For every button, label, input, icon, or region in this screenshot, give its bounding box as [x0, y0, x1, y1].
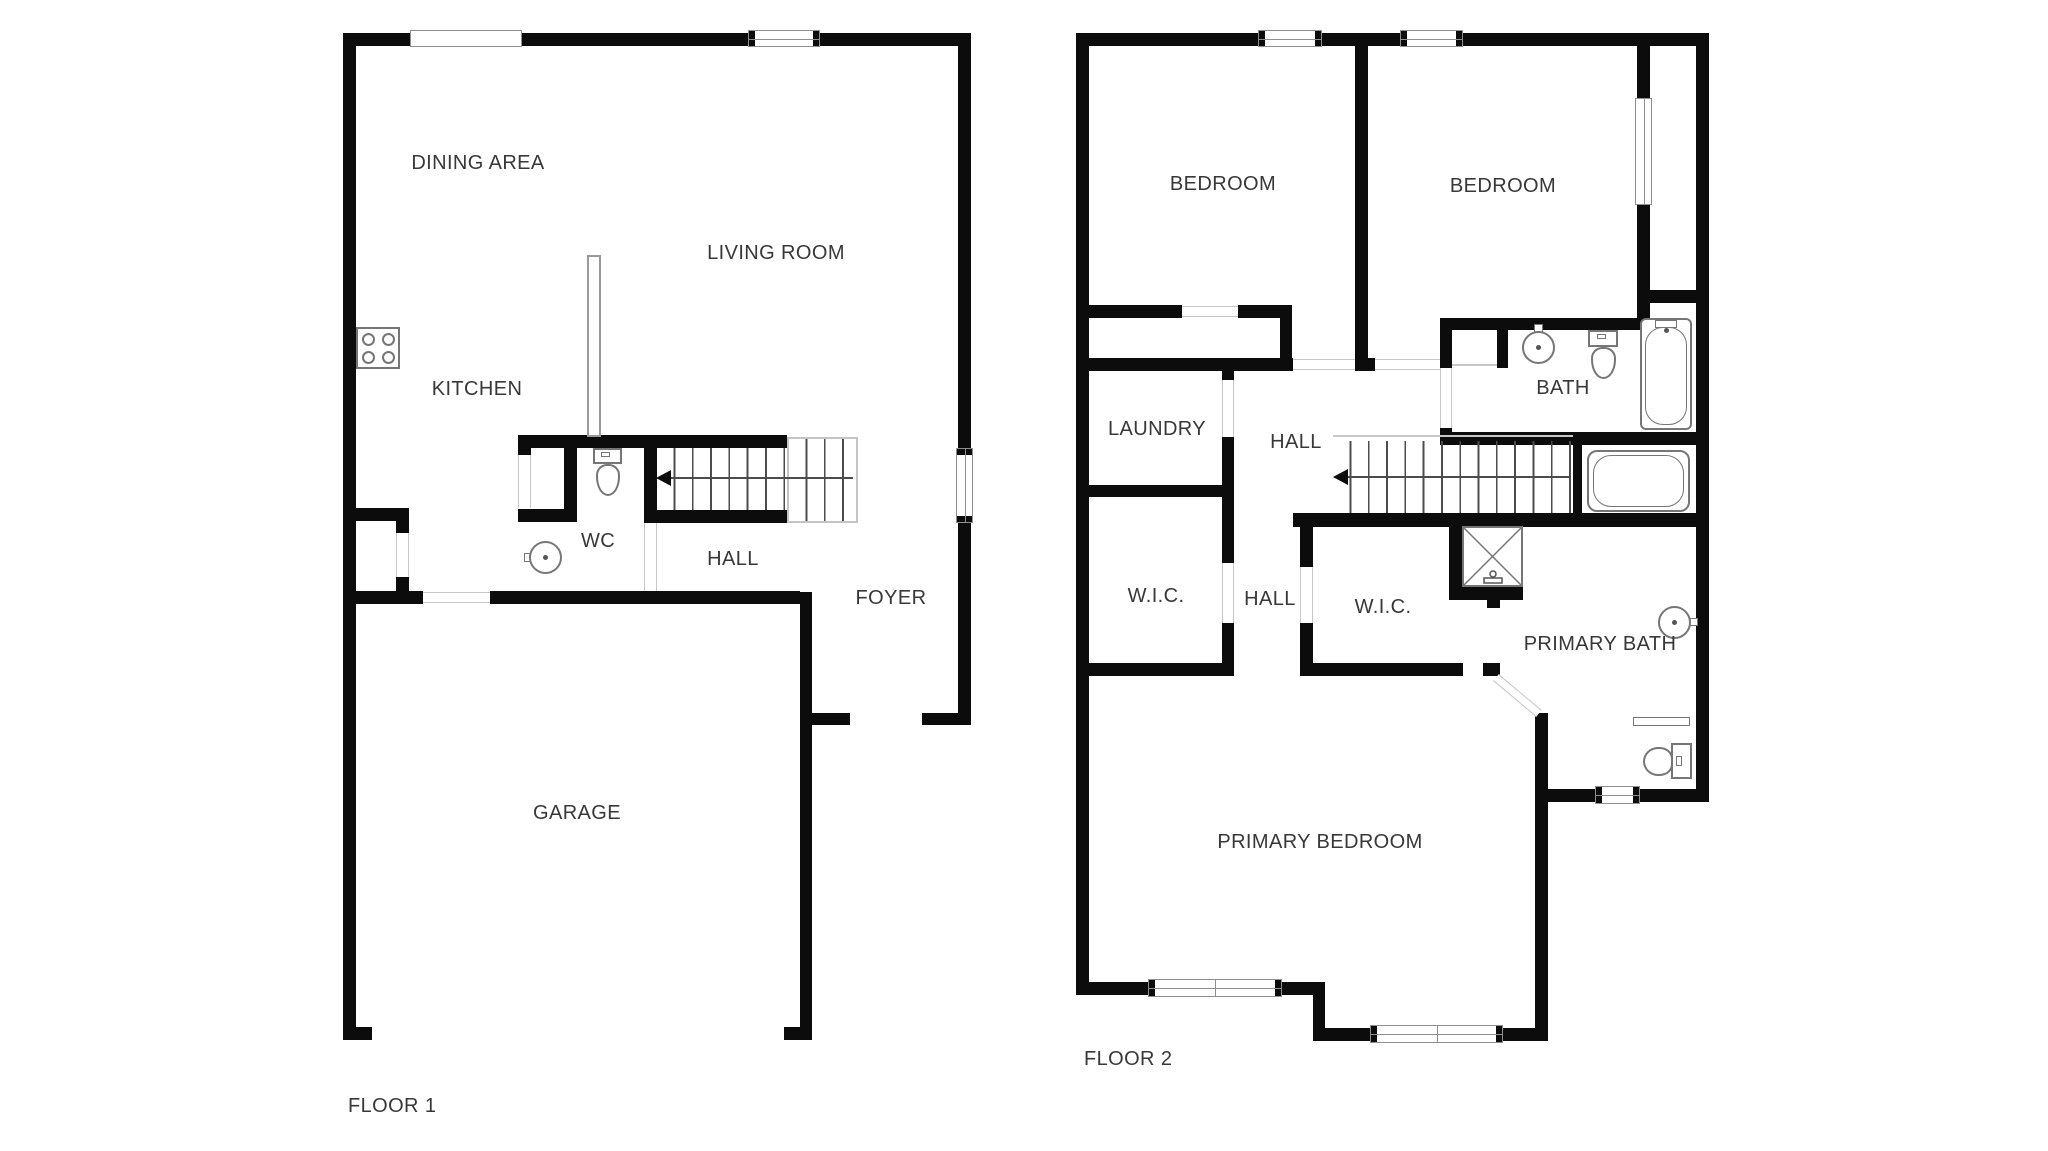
room-label-bedroom-2: BEDROOM: [1450, 176, 1556, 196]
wall: [1300, 663, 1463, 676]
towel-shelf-icon: [1633, 717, 1690, 726]
room-label-garage: GARAGE: [533, 803, 621, 823]
wall: [1535, 713, 1548, 1041]
closet-opening-line: [1452, 364, 1497, 366]
wall: [657, 510, 787, 523]
room-label-dining-area: DINING AREA: [411, 153, 544, 173]
wall: [518, 509, 577, 522]
wall: [356, 591, 423, 604]
wall: [1487, 600, 1500, 608]
window: [410, 30, 522, 47]
wall: [1637, 46, 1650, 98]
door-opening-diagonal: [1493, 674, 1542, 717]
room-label-hall-lower: HALL: [1244, 589, 1296, 609]
room-label-wc: WC: [581, 531, 615, 551]
stair-run-line: [1344, 476, 1569, 478]
room-label-hall: HALL: [707, 549, 759, 569]
room-label-foyer: FOYER: [856, 588, 927, 608]
door-opening: [1222, 563, 1234, 623]
wall: [396, 521, 409, 533]
shower-icon: [1462, 526, 1523, 587]
stair-direction-arrow: [1333, 469, 1348, 485]
window: [1148, 979, 1282, 997]
room-label-hall-upper: HALL: [1270, 432, 1322, 452]
window: [1595, 786, 1640, 804]
wall: [1640, 789, 1709, 802]
room-label-wic-2: W.I.C.: [1355, 597, 1412, 617]
room-label-bath: BATH: [1536, 378, 1589, 398]
wall: [518, 448, 531, 455]
wall: [490, 591, 800, 604]
wall: [1440, 318, 1650, 330]
door-opening: [644, 523, 657, 591]
wall: [1086, 663, 1228, 676]
stair-run-line: [668, 477, 853, 479]
door-opening: [1293, 359, 1355, 370]
wall: [343, 1027, 372, 1040]
room-label-bedroom-1: BEDROOM: [1170, 174, 1276, 194]
room-label-kitchen: KITCHEN: [432, 379, 523, 399]
window: [748, 30, 820, 47]
room-label-living-room: LIVING ROOM: [707, 243, 845, 263]
wall: [1650, 290, 1709, 303]
wall: [1696, 33, 1709, 802]
window: [1370, 1025, 1503, 1043]
wall: [1573, 445, 1582, 527]
door-opening: [1182, 306, 1238, 317]
wall: [1222, 437, 1234, 497]
wall: [1238, 305, 1292, 318]
wall: [1089, 358, 1293, 371]
wall: [1076, 982, 1148, 995]
wall: [1535, 789, 1595, 802]
wall: [1089, 485, 1222, 497]
stair-treads: [789, 439, 856, 521]
door-opening: [423, 592, 490, 603]
wall: [1355, 358, 1375, 371]
wall: [812, 713, 850, 725]
floor2-title: FLOOR 2: [1084, 1049, 1172, 1069]
wall: [1076, 33, 1709, 46]
door-opening: [396, 533, 409, 577]
wall: [356, 508, 409, 521]
wall: [1637, 205, 1650, 328]
wall: [958, 33, 971, 725]
stair-treads: [657, 448, 787, 510]
wall: [1313, 1028, 1370, 1041]
door-opening: [1300, 567, 1313, 623]
room-label-primary-bedroom: PRIMARY BEDROOM: [1217, 832, 1422, 852]
room-label-wic-1: W.I.C.: [1128, 586, 1185, 606]
wall: [1280, 318, 1292, 358]
window: [1635, 98, 1652, 205]
counter-half-wall: [587, 255, 601, 437]
door-opening: [1440, 368, 1452, 428]
floor1-title: FLOOR 1: [348, 1096, 436, 1116]
wall: [1503, 1028, 1548, 1041]
stair-edge-line: [1333, 435, 1573, 437]
wall: [800, 592, 812, 1040]
wall: [1076, 33, 1089, 995]
wall: [343, 33, 356, 1040]
wall: [784, 1027, 812, 1040]
wall: [1089, 305, 1182, 318]
wall: [1449, 587, 1523, 600]
wall: [1293, 513, 1709, 527]
wall: [1440, 318, 1452, 368]
wall: [1355, 46, 1368, 358]
stair-direction-arrow: [656, 470, 671, 486]
room-label-primary-bath: PRIMARY BATH: [1524, 634, 1677, 654]
window: [956, 448, 973, 523]
door-opening: [1222, 380, 1234, 437]
wall: [396, 577, 409, 591]
door-opening: [518, 455, 531, 508]
window: [1258, 30, 1322, 47]
wall: [1222, 358, 1234, 380]
window: [1400, 30, 1463, 47]
wall: [1222, 497, 1234, 563]
wall: [1497, 330, 1508, 368]
floor-plan-canvas: DINING AREA LIVING ROOM KITCHEN WC HALL …: [0, 0, 2048, 1151]
door-opening: [1375, 359, 1440, 370]
wall: [922, 713, 971, 725]
room-label-laundry: LAUNDRY: [1108, 419, 1206, 439]
